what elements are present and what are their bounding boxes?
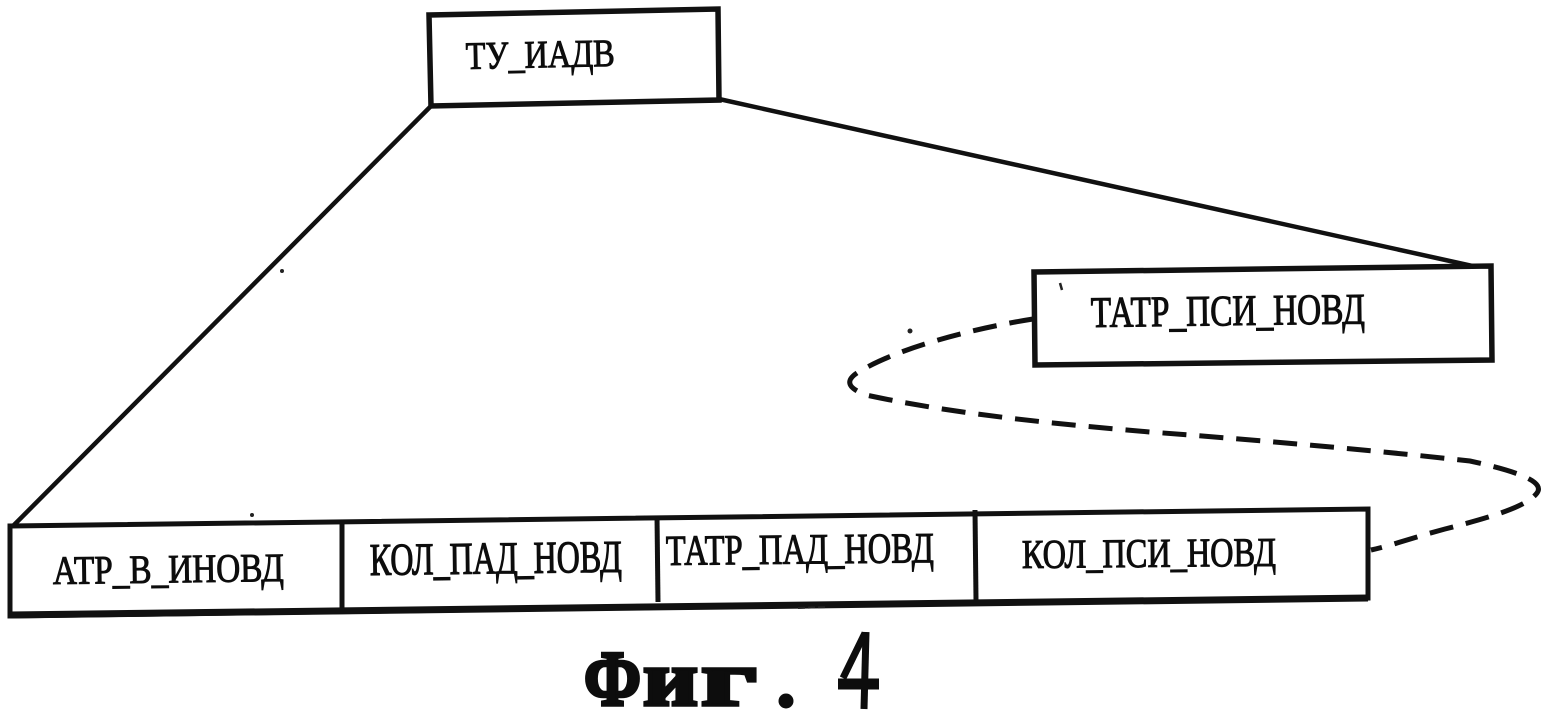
svg-text:г: г [701, 635, 757, 722]
svg-text:ТУ_ИАДВ: ТУ_ИАДВ [465, 31, 615, 77]
svg-text:Ф: Ф [584, 635, 641, 722]
svg-text:и: и [643, 635, 698, 722]
svg-text:КОЛ_ПСИ_НОВД: КОЛ_ПСИ_НОВД [1022, 531, 1276, 578]
svg-text:ТАТР_ПАД_НОВД: ТАТР_ПАД_НОВД [666, 525, 934, 575]
svg-text:КОЛ_ПАД_НОВД: КОЛ_ПАД_НОВД [369, 532, 622, 586]
svg-text:ТАТР_ПСИ_НОВД: ТАТР_ПСИ_НОВД [1091, 286, 1366, 337]
svg-text:АТР_В_ИНОВД: АТР_В_ИНОВД [53, 545, 285, 593]
